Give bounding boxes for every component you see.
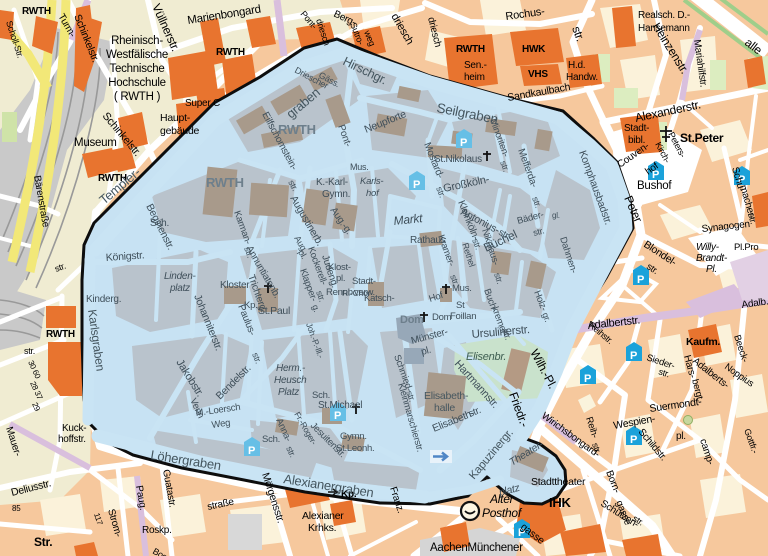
svg-text:Sen.-: Sen.- [464,60,487,71]
svg-text:Kloster: Kloster [220,280,250,291]
svg-text:Rheinisch-: Rheinisch- [111,35,163,47]
svg-text:Haupt-: Haupt- [160,112,191,124]
svg-text:RWTH: RWTH [22,6,51,17]
svg-text:IHK: IHK [549,495,572,510]
svg-text:Technische: Technische [109,63,164,75]
svg-text:P: P [460,137,467,149]
svg-text:St: St [456,300,465,311]
svg-text:str.: str. [24,346,35,356]
svg-text:Rennb.: Rennb. [326,287,355,298]
svg-text:Super C: Super C [185,98,220,109]
svg-text:gebäude: gebäude [160,125,200,137]
svg-text:VHS: VHS [528,69,548,80]
svg-text:Heusch: Heusch [274,375,307,386]
svg-text:Klost-: Klost- [328,262,351,273]
svg-text:Pl.Pro: Pl.Pro [734,242,758,253]
svg-text:RWTH: RWTH [456,44,485,55]
svg-text:Alexianer: Alexianer [302,510,344,522]
svg-text:platz: platz [169,283,190,294]
svg-text:pl.: pl. [336,273,345,284]
svg-text:halle: halle [434,402,455,414]
svg-text:Roskp.: Roskp. [142,525,172,536]
svg-text:heim: heim [464,72,485,83]
svg-text:Mus.: Mus. [350,162,369,172]
svg-text:Museum: Museum [74,137,117,149]
svg-text:P: P [584,373,591,385]
svg-text:RWTH: RWTH [46,329,75,340]
svg-text:P: P [334,410,341,422]
svg-text:Sch.: Sch. [150,218,169,229]
svg-text:Foillan: Foillan [450,311,476,322]
svg-text:Sch.: Sch. [262,434,280,445]
svg-text:P: P [248,445,255,457]
svg-text:Brandt-: Brandt- [696,253,728,264]
svg-text:Realsch. D.-: Realsch. D.- [638,10,690,21]
svg-text:Platz: Platz [278,387,299,398]
svg-text:Willy-: Willy- [696,242,720,253]
svg-text:Elisabeth-: Elisabeth- [424,390,469,402]
svg-text:HWK: HWK [522,44,546,55]
svg-text:St.Peter: St.Peter [680,131,724,145]
svg-text:H.d.: H.d. [568,60,585,71]
svg-text:Mus.: Mus. [452,283,472,294]
svg-text:hof: hof [366,188,380,199]
svg-text:RWTH: RWTH [206,175,244,190]
svg-text:Kuck-: Kuck- [62,423,86,434]
svg-text:Rathaus: Rathaus [410,235,446,246]
svg-text:hoffstr.: hoffstr. [58,434,86,445]
svg-text:Pl.: Pl. [706,264,717,275]
svg-text:RWTH: RWTH [216,47,245,58]
svg-text:Linden-: Linden- [164,271,197,282]
svg-text:St.Michael: St.Michael [318,400,362,411]
svg-text:AachenMünchener: AachenMünchener [430,542,523,554]
svg-text:RWTH: RWTH [278,122,316,137]
svg-text:St.Leonh.: St.Leonh. [336,443,374,454]
svg-text:P: P [637,274,644,286]
svg-text:St.Nikolaus: St.Nikolaus [434,154,482,165]
svg-text:Stadt-: Stadt- [352,276,376,287]
svg-text:Hansemann: Hansemann [638,23,690,34]
svg-text:P: P [630,434,637,446]
svg-text:Krhks.: Krhks. [308,522,336,534]
svg-text:85: 85 [12,504,21,513]
svg-text:Str.: Str. [34,535,52,549]
svg-text:Gymn.: Gymn. [340,431,367,442]
svg-text:K.-Karl-: K.-Karl- [316,177,348,188]
svg-text:Stadttheater: Stadttheater [531,476,586,488]
svg-text:( RWTH ): ( RWTH ) [114,91,161,103]
svg-text:Karls-: Karls- [360,176,383,187]
svg-text:Dom: Dom [400,314,424,326]
svg-text:Kaufm.: Kaufm. [686,336,720,348]
svg-text:Elisenbr.: Elisenbr. [466,351,506,363]
svg-text:Kinderg.: Kinderg. [86,294,121,305]
svg-text:Stadt-: Stadt- [624,123,649,134]
svg-text:Dom: Dom [432,312,452,323]
svg-text:Bushof: Bushof [637,180,672,192]
svg-text:Handw.: Handw. [566,72,598,83]
svg-text:P: P [413,179,420,191]
svg-text:Gymn.: Gymn. [322,189,350,200]
svg-text:P: P [630,350,637,362]
svg-text:pl.: pl. [676,431,686,442]
svg-text:gl.: gl. [552,211,560,220]
svg-text:Westfälische: Westfälische [106,49,168,61]
svg-text:Posthof: Posthof [482,506,523,520]
svg-text:Hochschule: Hochschule [108,77,166,89]
svg-text:Herm.-: Herm.- [276,363,306,374]
